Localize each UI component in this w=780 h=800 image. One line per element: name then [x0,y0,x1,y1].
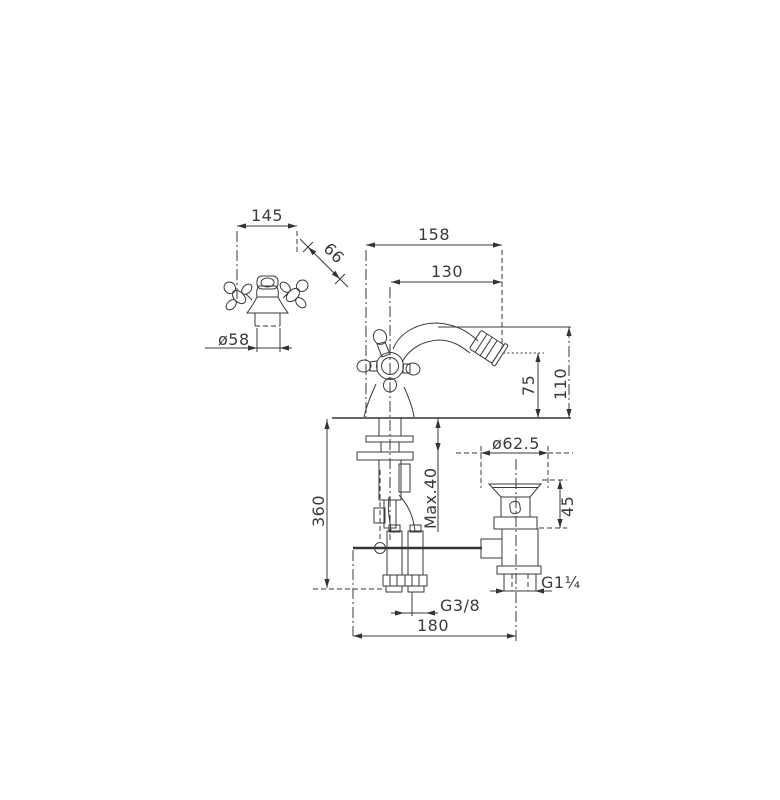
dim-label-g1-14: G1¼ [541,573,581,592]
dim-label-145: 145 [251,206,283,225]
dimension-centre-distance: 180 [353,550,516,639]
dim-label-o58: ø58 [218,330,250,349]
top-view-drawing [214,270,319,326]
dim-label-75: 75 [519,375,538,396]
dimension-hose-length: 360 [309,419,383,589]
popup-pull-rod [374,470,385,543]
dimension-outlet-height: 75 [503,353,544,418]
dim-label-g3-8: G3/8 [440,596,480,615]
dimension-spout-reach: 130 [391,262,502,285]
dimension-supply-thread: G3/8 [391,592,480,616]
dim-label-130: 130 [431,262,463,281]
dimension-spout-diagonal: 66 [300,239,348,287]
top-view-right-handle [275,270,318,313]
dim-label-158: 158 [418,225,450,244]
bidet-faucet-dimension-drawing: 145 66 ø58 [0,0,780,800]
dim-label-max40: Max.40 [421,467,440,529]
dim-label-360: 360 [309,495,328,527]
dimension-base-diameter: ø58 [205,328,292,352]
dimension-waste-upper-height: 45 [539,480,577,528]
dimension-max-deck-thickness: Max.40 [421,418,441,532]
dimension-waste-flange-diameter: ø62.5 [456,434,573,488]
popup-waste-drawing [481,459,541,641]
dim-label-110: 110 [551,368,570,400]
dim-label-45: 45 [558,496,577,517]
technical-drawing-page: 145 66 ø58 [0,0,780,800]
dimension-total-height: 110 [438,327,572,418]
dim-label-o62-5: ø62.5 [492,434,540,453]
dim-label-180: 180 [417,616,449,635]
dimension-total-reach: 158 [366,225,502,417]
